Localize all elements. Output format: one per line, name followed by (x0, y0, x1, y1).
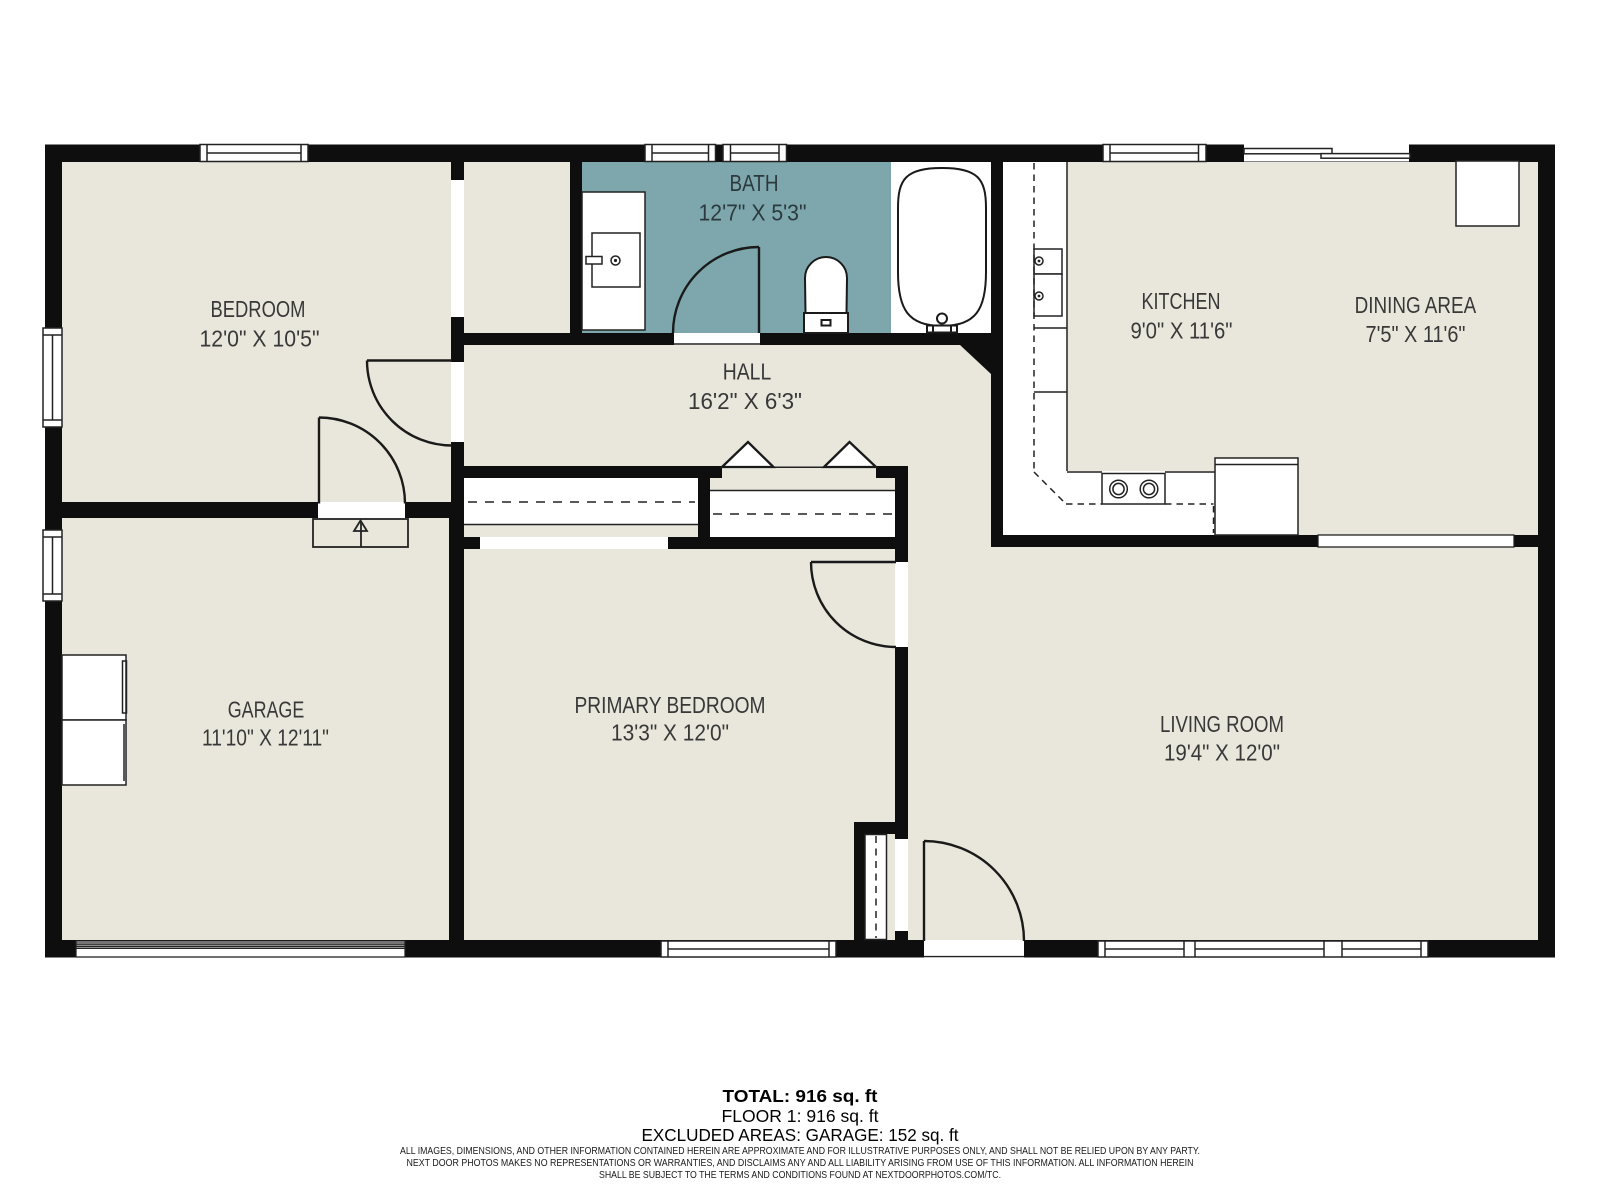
svg-text:NEXT DOOR PHOTOS MAKES NO REPR: NEXT DOOR PHOTOS MAKES NO REPRESENTATION… (407, 1157, 1194, 1169)
svg-text:11'10" X 12'11": 11'10" X 12'11" (202, 725, 329, 751)
svg-text:ALL IMAGES, DIMENSIONS, AND OT: ALL IMAGES, DIMENSIONS, AND OTHER INFORM… (400, 1145, 1200, 1157)
svg-text:LIVING ROOM: LIVING ROOM (1160, 711, 1284, 737)
svg-text:16'2" X 6'3": 16'2" X 6'3" (688, 388, 802, 414)
svg-text:13'3" X 12'0": 13'3" X 12'0" (611, 720, 729, 746)
svg-text:FLOOR 1: 916 sq. ft: FLOOR 1: 916 sq. ft (722, 1106, 879, 1126)
svg-text:GARAGE: GARAGE (228, 697, 305, 723)
svg-text:TOTAL: 916 sq. ft: TOTAL: 916 sq. ft (723, 1086, 878, 1106)
svg-text:BATH: BATH (730, 170, 779, 196)
svg-text:SHALL BE SUBJECT TO THE TERMS: SHALL BE SUBJECT TO THE TERMS AND CONDIT… (599, 1169, 1001, 1181)
svg-text:KITCHEN: KITCHEN (1142, 288, 1221, 314)
svg-text:DINING AREA: DINING AREA (1355, 292, 1477, 318)
svg-text:EXCLUDED AREAS: GARAGE: 152 sq: EXCLUDED AREAS: GARAGE: 152 sq. ft (642, 1125, 959, 1145)
svg-text:PRIMARY BEDROOM: PRIMARY BEDROOM (575, 692, 766, 718)
svg-text:12'0" X 10'5": 12'0" X 10'5" (200, 326, 320, 352)
svg-text:9'0" X 11'6": 9'0" X 11'6" (1131, 318, 1233, 344)
svg-text:7'5" X 11'6": 7'5" X 11'6" (1366, 321, 1466, 347)
svg-text:12'7" X 5'3": 12'7" X 5'3" (699, 200, 807, 226)
svg-text:HALL: HALL (723, 359, 772, 385)
svg-text:BEDROOM: BEDROOM (211, 296, 306, 322)
svg-text:19'4" X 12'0": 19'4" X 12'0" (1164, 740, 1280, 766)
